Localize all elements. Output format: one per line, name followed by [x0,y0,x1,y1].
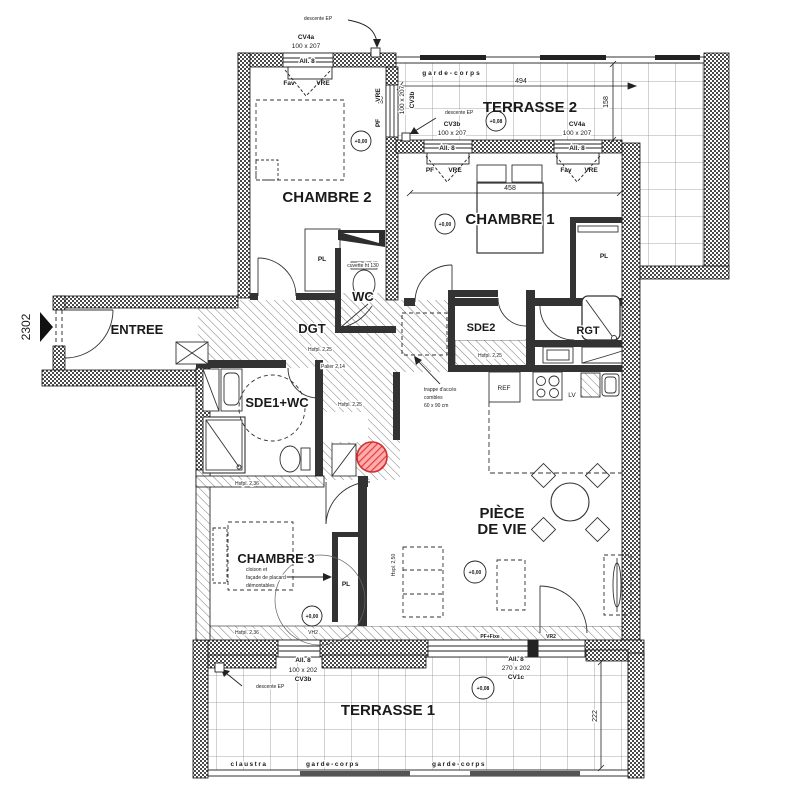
win-pdv-cv1c: CV1c [508,674,525,681]
room-chambre2: CHAMBRE 2 [282,189,371,206]
win-fav-c2: Fav [283,80,295,87]
trappe-line2: combles [424,395,443,401]
win-pf-c1: PF [426,167,434,174]
room-pdv-2: DE VIE [477,521,526,538]
room-wc: WC [352,289,374,304]
room-rgt: RGT [576,325,600,337]
hsfpl-dgt: Hsfpl. 2,25 [308,347,332,353]
win-cv4a-top-size: 100 x 207 [292,43,321,50]
win-pdv-size: 270 x 202 [502,665,531,672]
pl-chambre2: PL [318,256,326,263]
room-chambre1: CHAMBRE 1 [465,211,554,228]
win-cv3b-t2-size: 100 x 207 [438,130,467,137]
win-vre-side: VRE [375,88,382,102]
level-terrasse2: +0,08 [490,119,503,125]
cloison-line3: démontables [246,583,275,589]
room-entree: ENTREE [111,322,164,337]
room-sde2: SDE2 [467,322,496,334]
win-cv4a-top: CV4a [298,34,315,41]
level-chambre1: +0,00 [439,222,452,228]
dim-222: 222 [592,710,599,722]
win-all8-pdv: All. 8 [508,656,524,663]
win-vre-c1a: VRE [448,167,462,174]
room-sde1wc: SDE1+WC [245,395,309,410]
win-vh2: VH2 [308,630,318,636]
hspl-pdv: Hspl. 2,50 [391,554,397,577]
dim-158: 158 [603,96,610,108]
level-terrasse1: +0,08 [477,686,490,692]
trappe-line1: trappe d'accès [424,387,457,393]
floor-plan-drawing: +0,00 +0,08 +0,00 +0,00 +0,00 +0,08 TERR… [0,0,791,800]
hsfpl-sde1: Hsfpl. 2,25 [338,402,362,408]
win-all8-c1b: All. 8 [569,145,585,152]
pl-chambre1: PL [600,253,608,260]
win-vre-c2: VRE [316,80,330,87]
win-vre-c1b: VRE [584,167,598,174]
win-pf-side: PF [375,119,382,127]
dim-458: 458 [504,185,516,192]
room-dgt: DGT [298,321,326,336]
floor-plan-page: +0,00 +0,08 +0,00 +0,00 +0,00 +0,08 TERR… [0,0,791,800]
win-vr2: VR2 [546,634,556,640]
win-t1-cv3b: CV3b [295,676,312,683]
win-all8-top: All. 8 [299,58,315,65]
red-location-marker[interactable] [357,442,387,472]
kitchen-lv: LV [568,392,576,399]
cloison-line2: façade de placard [246,575,286,581]
hsfpl-c3-bottom: Hsfpl. 2,36 [235,630,259,636]
hsfpl-sde2: Hsfpl. 2,25 [478,353,502,359]
claustra-label: claustra [231,761,268,768]
kitchen-ref: REF [498,385,511,392]
win-t1-size: 100 x 202 [289,667,318,674]
win-cv4a-t2: CV4a [569,121,586,128]
dim-494: 494 [515,78,527,85]
unit-number: 2302 [19,313,33,340]
room-terrasse1: TERRASSE 1 [341,702,435,719]
wc-cuvette-note: cuvette ht 130 [347,263,379,269]
win-all8-c1a: All. 8 [439,145,455,152]
win-side-cv3b: CV3b [409,92,416,109]
win-pf-fixe: PF+Fixe [480,634,500,640]
descente-ep-t1: descente EP [256,684,285,690]
win-fav-c1: Fav [560,167,572,174]
win-all8-t1: All. 8 [295,657,311,664]
pl-chambre3: PL [342,581,350,588]
room-pdv-1: PIÈCE [479,505,524,522]
garde-corps-b2: garde-corps [432,761,486,768]
win-side-size: 100 x 207 [399,85,406,114]
trappe-line3: 60 x 90 cm [424,403,448,409]
hsfpl-c3-top: Hsfpl. 2,36 [235,481,259,487]
room-terrasse2: TERRASSE 2 [483,99,577,116]
garde-corps-top: garde-corps [422,70,482,77]
descente-ep-t2: descente EP [445,110,474,116]
descente-ep-top: descente EP [304,16,333,22]
cloison-line1: cloison et [246,567,268,573]
palier-note: Palier 2,14 [321,364,345,370]
win-cv3b-t2: CV3b [444,121,461,128]
level-chambre2: +0,00 [355,139,368,145]
level-chambre3: +0,00 [306,614,319,620]
room-chambre3: CHAMBRE 3 [237,551,314,566]
win-cv4a-t2-size: 100 x 207 [563,130,592,137]
garde-corps-b1: garde-corps [306,761,360,768]
level-piece-de-vie: +0,00 [469,570,482,576]
